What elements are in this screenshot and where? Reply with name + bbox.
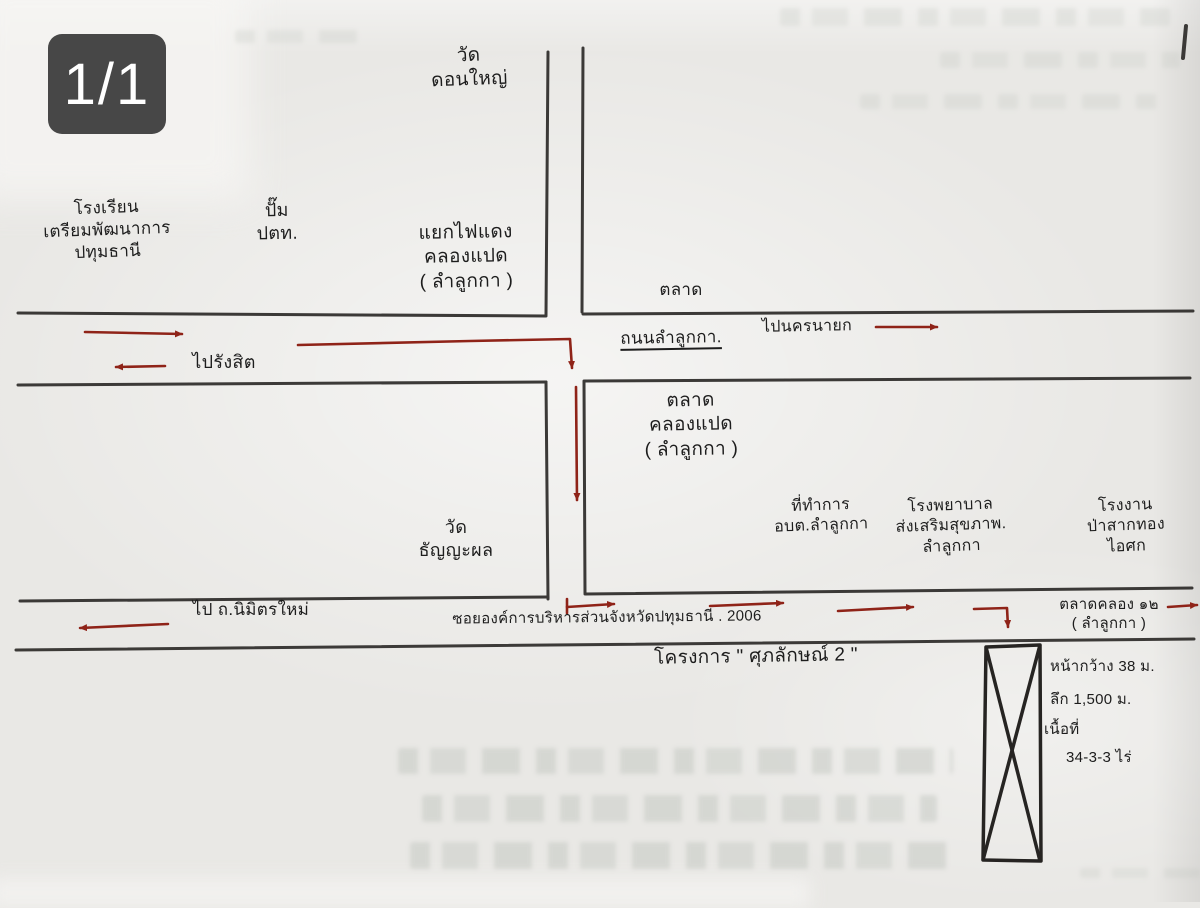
arrow-to-rangsit [116,366,165,367]
road-vertical-top-right-edge [582,48,583,312]
road-lamlukka-top-right [583,311,1193,314]
road-lamlukka-bottom-left [18,382,546,385]
label-wat-thanyaphon: วัด ธัญญะผล [390,516,522,562]
label-ptt-station: ปั๊ม ปตท. [238,198,317,245]
arrow-turn-south-into-junction [298,339,572,368]
label-factory: โรงงาน ป่าสากทอง ไอศก [1061,494,1191,560]
label-sao-office: ที่ทำการ อบต.ลำลูกกา [754,494,887,540]
road-vertical-mid-right-edge [584,381,585,593]
label-traffic-light-junction: แยกไฟแดง คลองแปด ( ลำลูกกา ) [379,220,552,296]
edge-mark [1183,26,1186,58]
label-market-top: ตลาด [642,279,720,301]
label-lamlukka-road: ถนนลำลูกกา. [595,326,747,350]
label-plot-area-value: 34-3-3 ไร่ [1066,748,1186,767]
label-to-rangsit: ไปรังสิต [170,351,278,374]
road-lamlukka-top-left [18,313,546,316]
label-market-khlong-paed: ตลาด คลองแปด ( ลำลูกกา ) [606,388,775,464]
label-plot-area-caption: เนื้อที่ [1044,720,1134,739]
scanned-map-page: 1/1 โรงเรียน เตรียมพัฒนาการ ปทุมธานี ปั๊… [0,0,1200,902]
arrow-south-mid-road [576,387,577,500]
arrow-to-nimit-mai [80,624,168,628]
arrow-turn-south-to-plot [974,608,1008,627]
label-project-name: โครงการ " ศุภลักษณ์ 2 " [610,642,902,671]
label-plot-depth: ลึก 1,500 ม. [1050,690,1195,709]
road-lamlukka-bottom-right [585,378,1190,381]
road-soi-top-right [585,588,1192,594]
label-school: โรงเรียน เตรียมพัฒนาการ ปทุมธานี [27,194,187,265]
map-drawing [0,0,1200,902]
label-plot-frontage: หน้ากว้าง 38 ม. [1050,657,1195,676]
arrow-east-soi-1 [567,604,614,607]
page-indicator-badge: 1/1 [48,34,166,134]
arrow-east-soi-3 [838,607,913,611]
label-soi-pao: ซอยองค์การบริหารส่วนจังหวัดปทุมธานี . 20… [413,606,801,629]
arrow-east-upper [85,332,182,334]
label-to-nakhon-nayok: ไปนครนายก [748,316,866,339]
label-market-khlong-12: ตลาดคลอง ๑๒ ( ลำลูกกา ) [1026,595,1192,633]
label-health-hospital: โรงพยาบาล ส่งเสริมสุขภาพ. ลำลูกกา [881,494,1021,560]
page-indicator-label: 1/1 [64,51,151,118]
road-vertical-mid-left-edge [546,382,548,599]
label-wat-don-yai: วัด ดอนใหญ่ [404,42,534,95]
label-to-nimit-mai: ไป ถ.นิมิตรใหม่ [172,599,330,621]
